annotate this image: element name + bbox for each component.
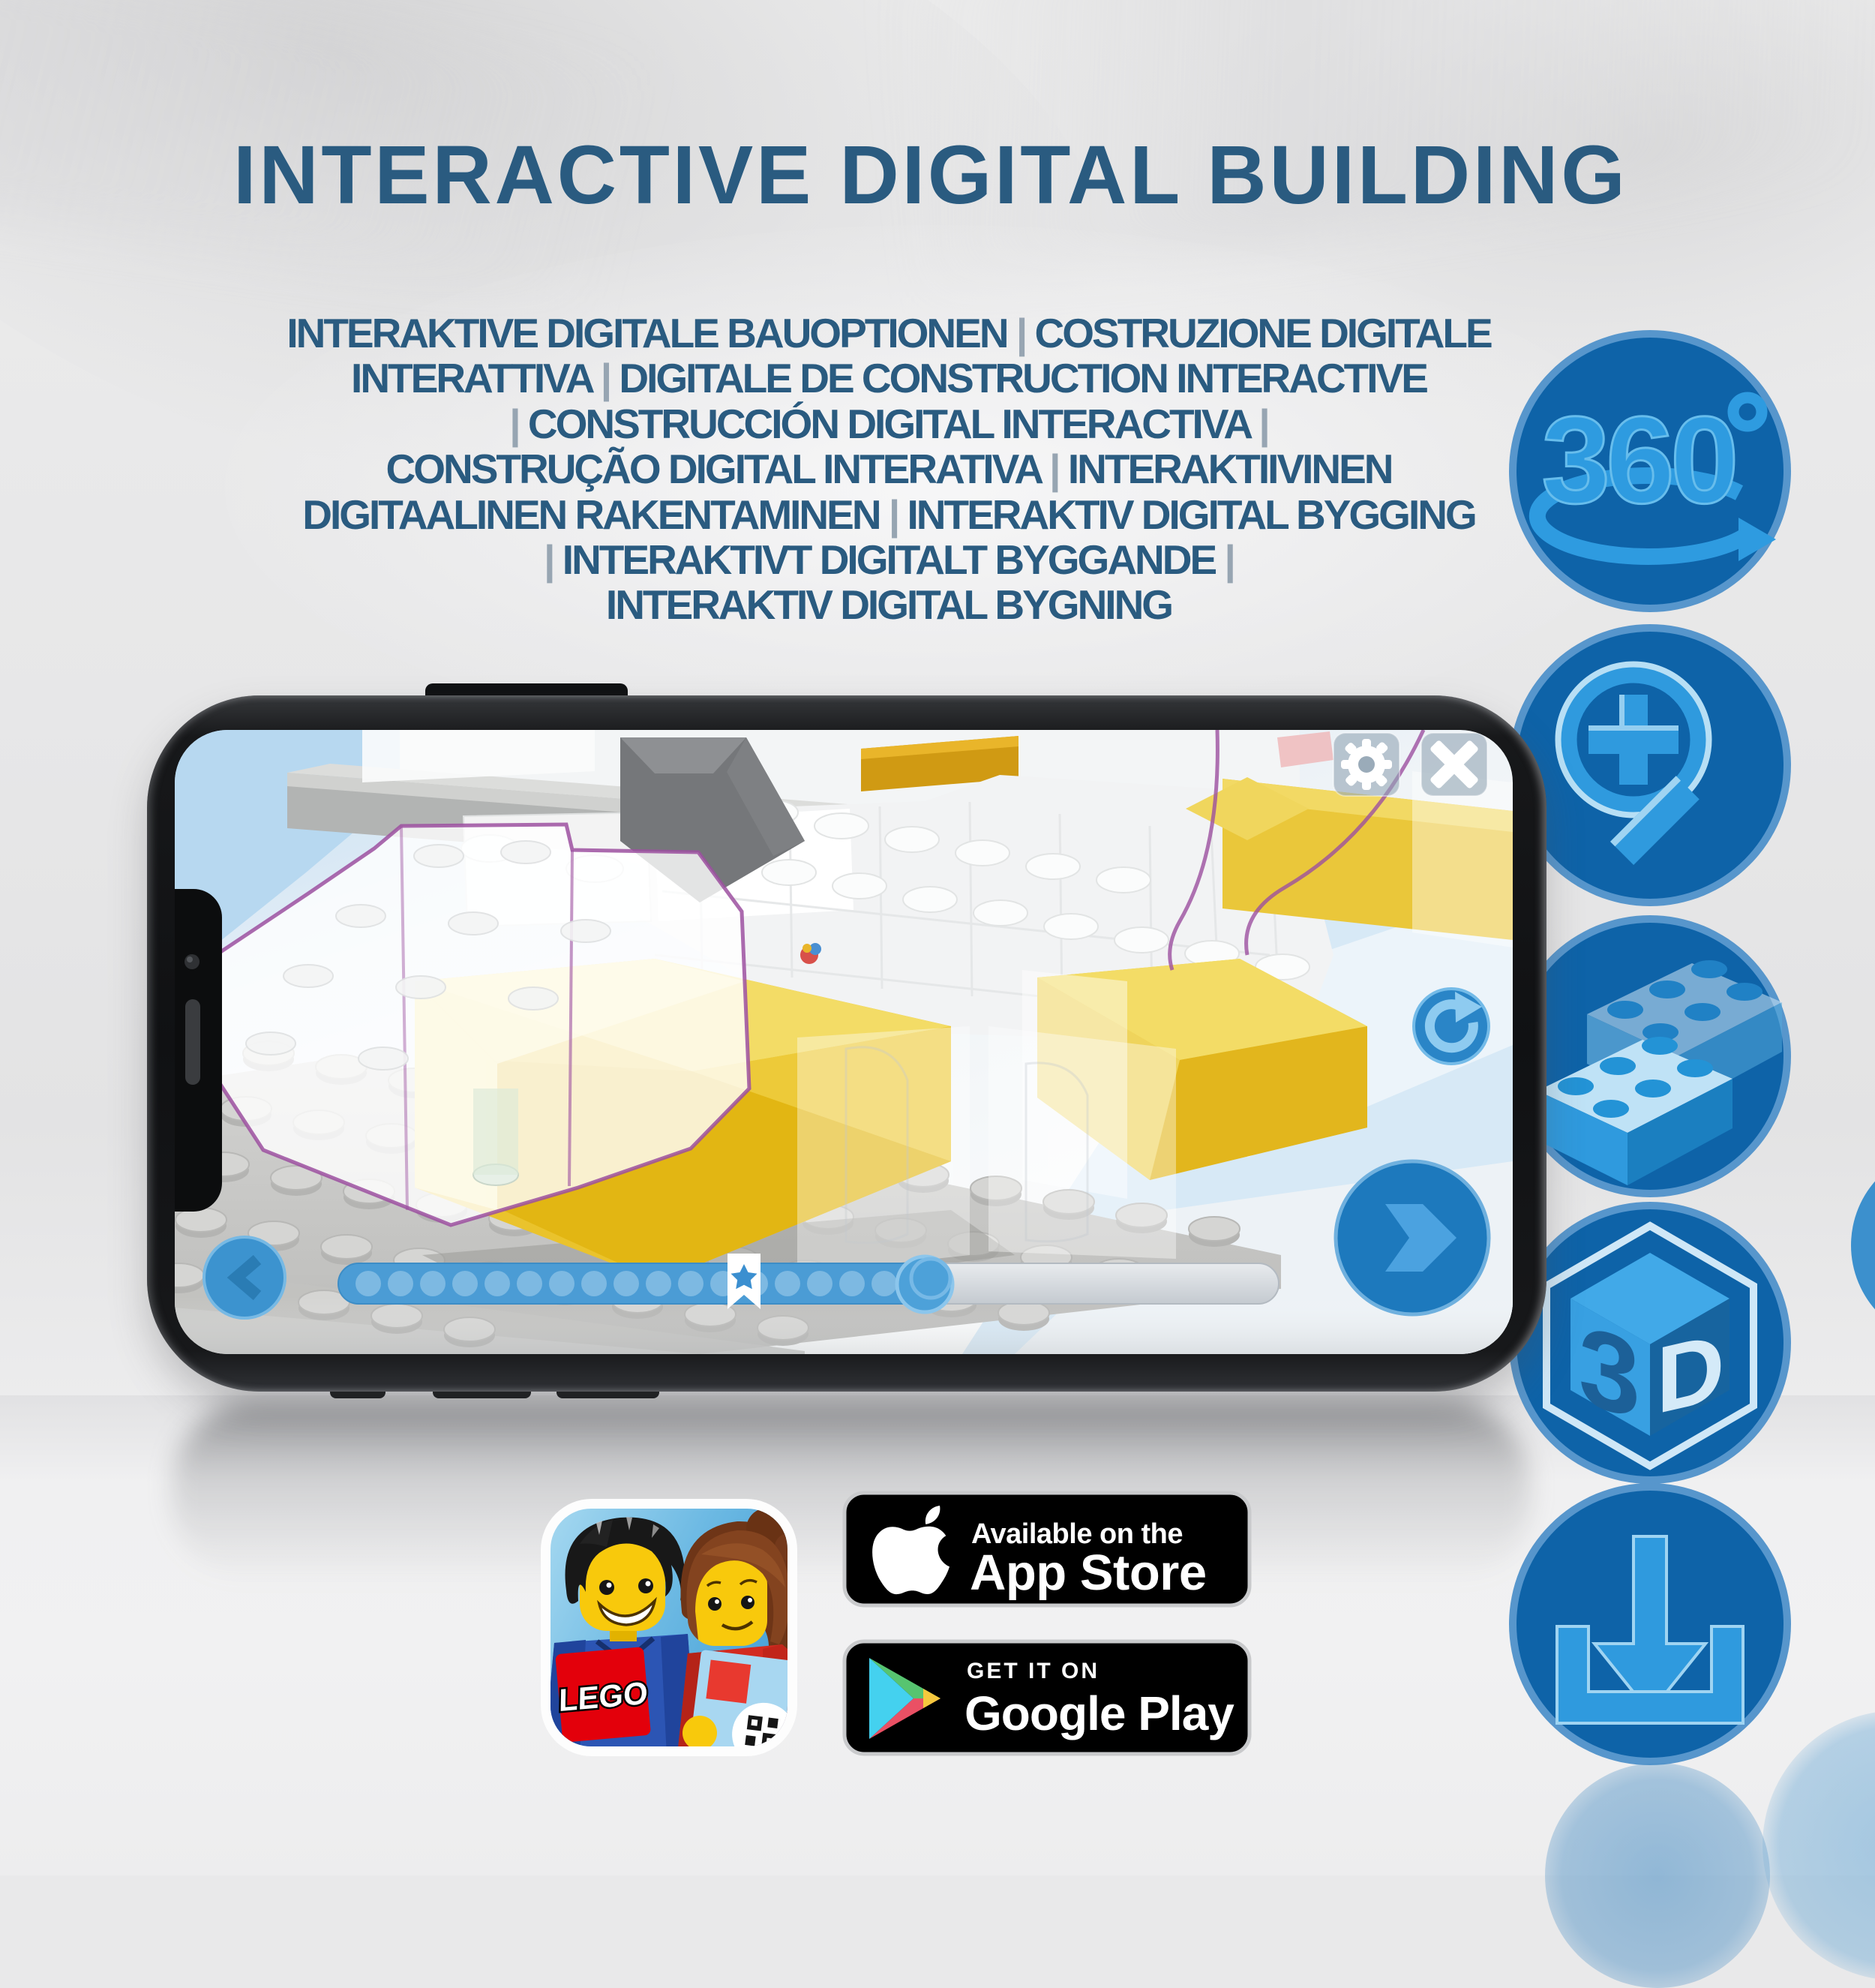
- svg-text:360: 360: [1541, 391, 1734, 529]
- svg-text:Google Play: Google Play: [964, 1686, 1234, 1740]
- svg-text:3: 3: [1579, 1302, 1640, 1443]
- svg-text:App Store: App Store: [970, 1545, 1207, 1601]
- svg-text:GET IT ON: GET IT ON: [967, 1659, 1099, 1683]
- svg-text:D: D: [1657, 1313, 1725, 1434]
